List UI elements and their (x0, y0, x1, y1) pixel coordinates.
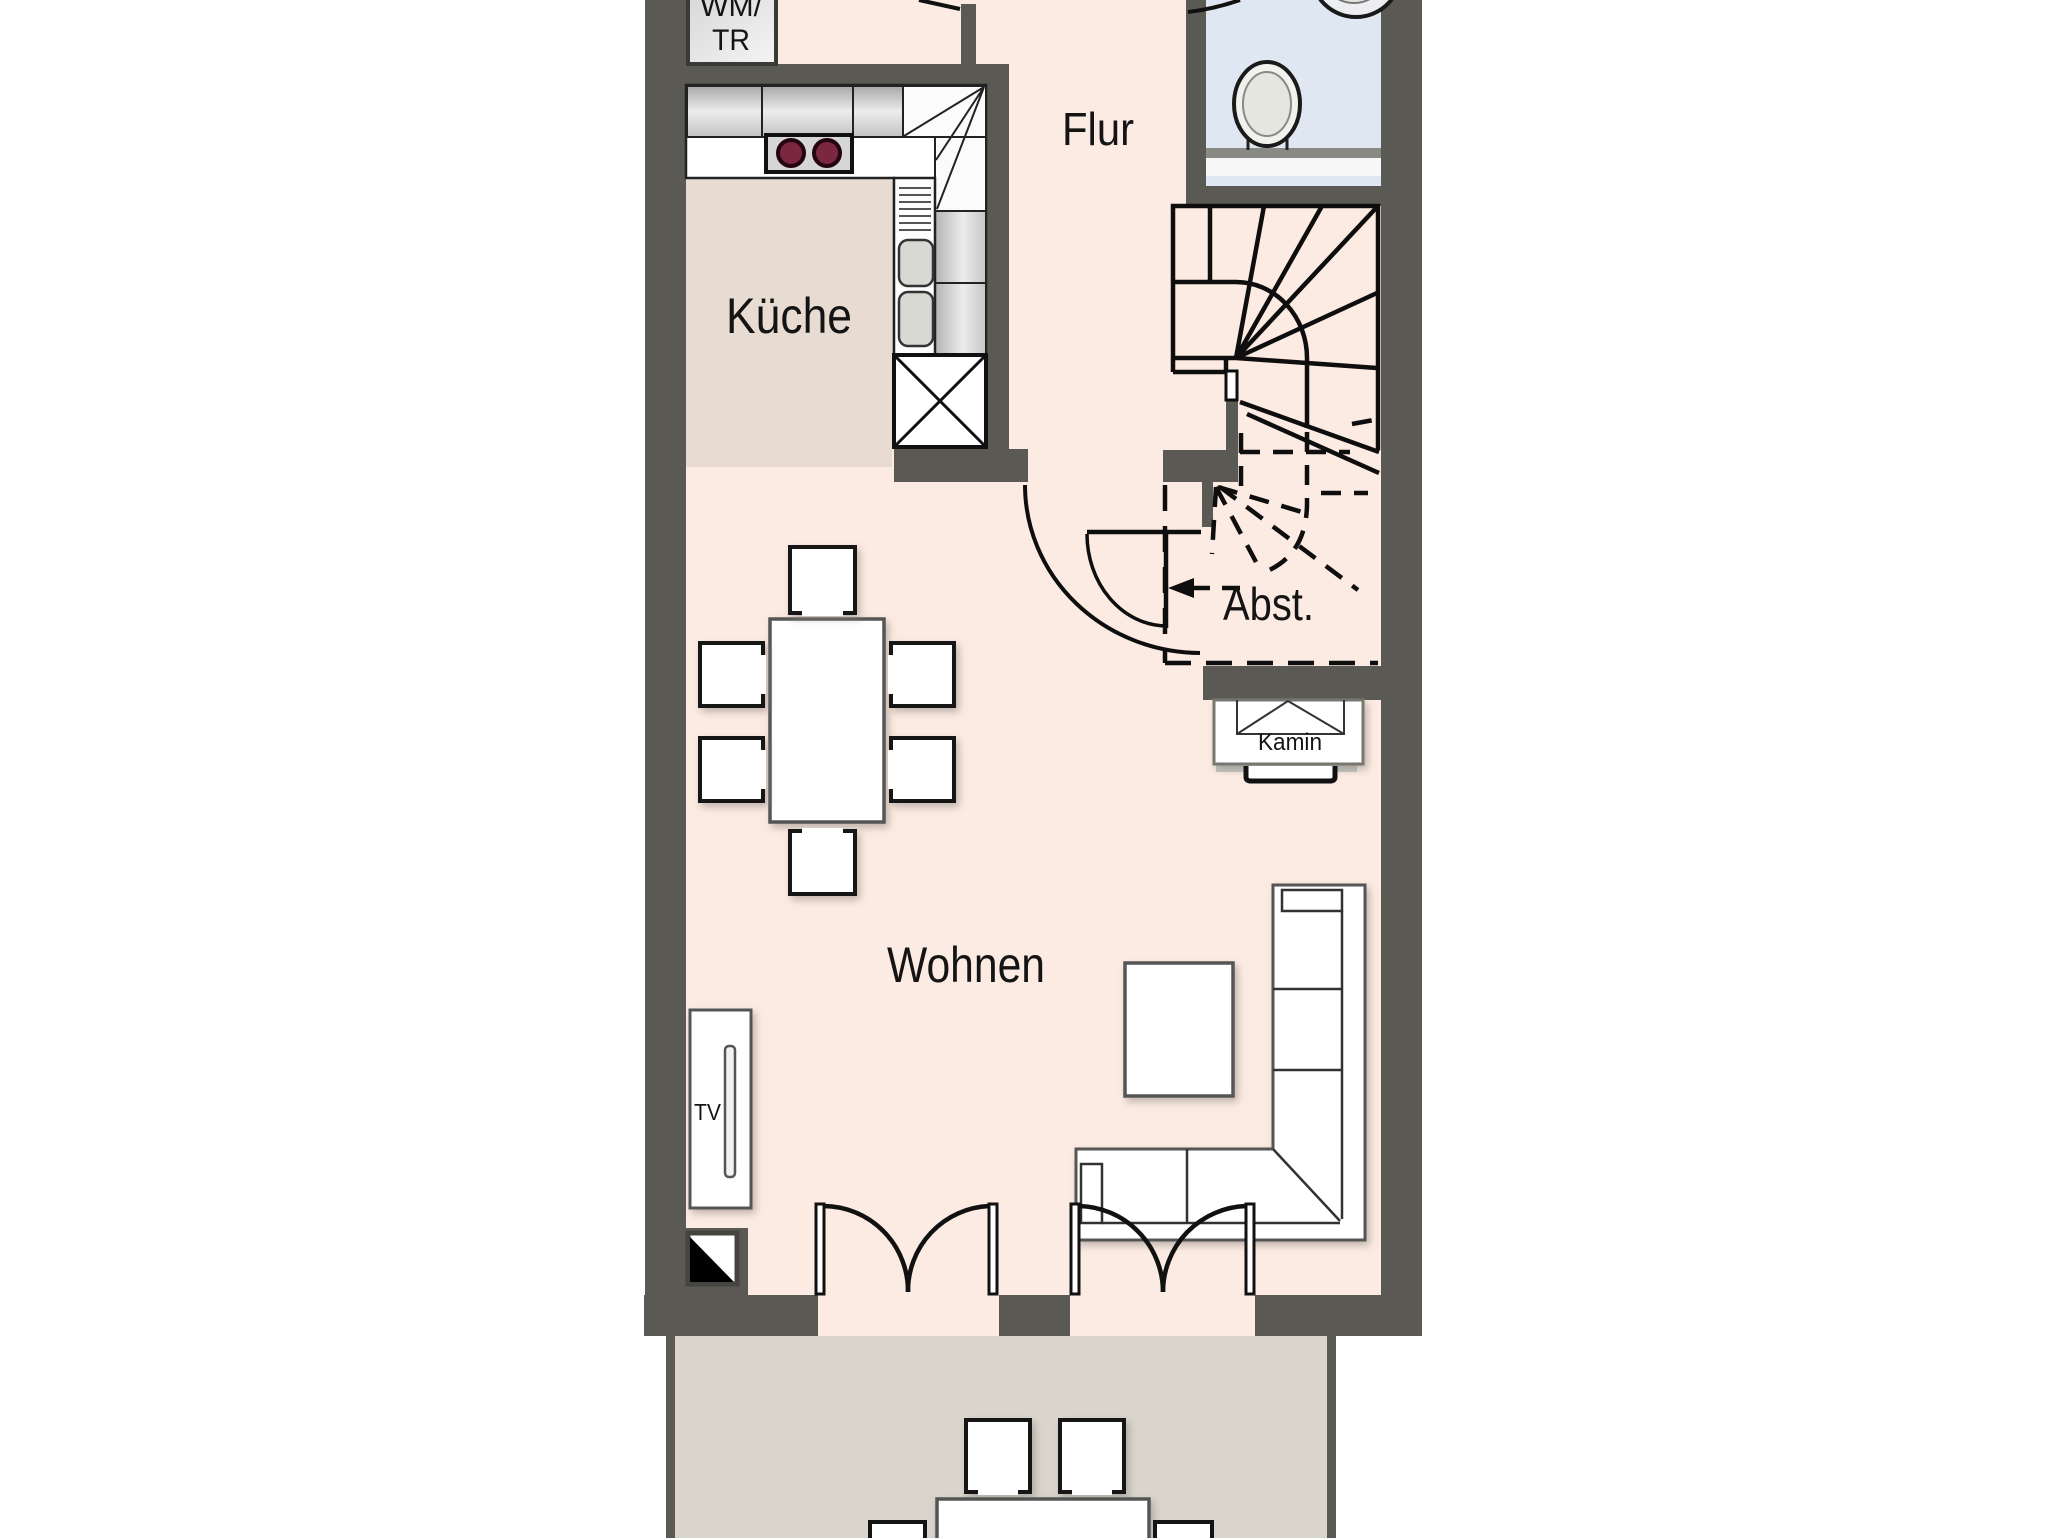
svg-text:Küche: Küche (726, 288, 852, 344)
svg-text:Abst.: Abst. (1223, 578, 1314, 630)
svg-text:WM/: WM/ (700, 0, 763, 23)
svg-text:TR: TR (712, 24, 750, 57)
svg-text:Wohnen: Wohnen (887, 937, 1045, 993)
svg-text:TV: TV (694, 1099, 722, 1125)
svg-text:Kamin: Kamin (1258, 729, 1322, 756)
svg-text:Flur: Flur (1062, 103, 1134, 155)
